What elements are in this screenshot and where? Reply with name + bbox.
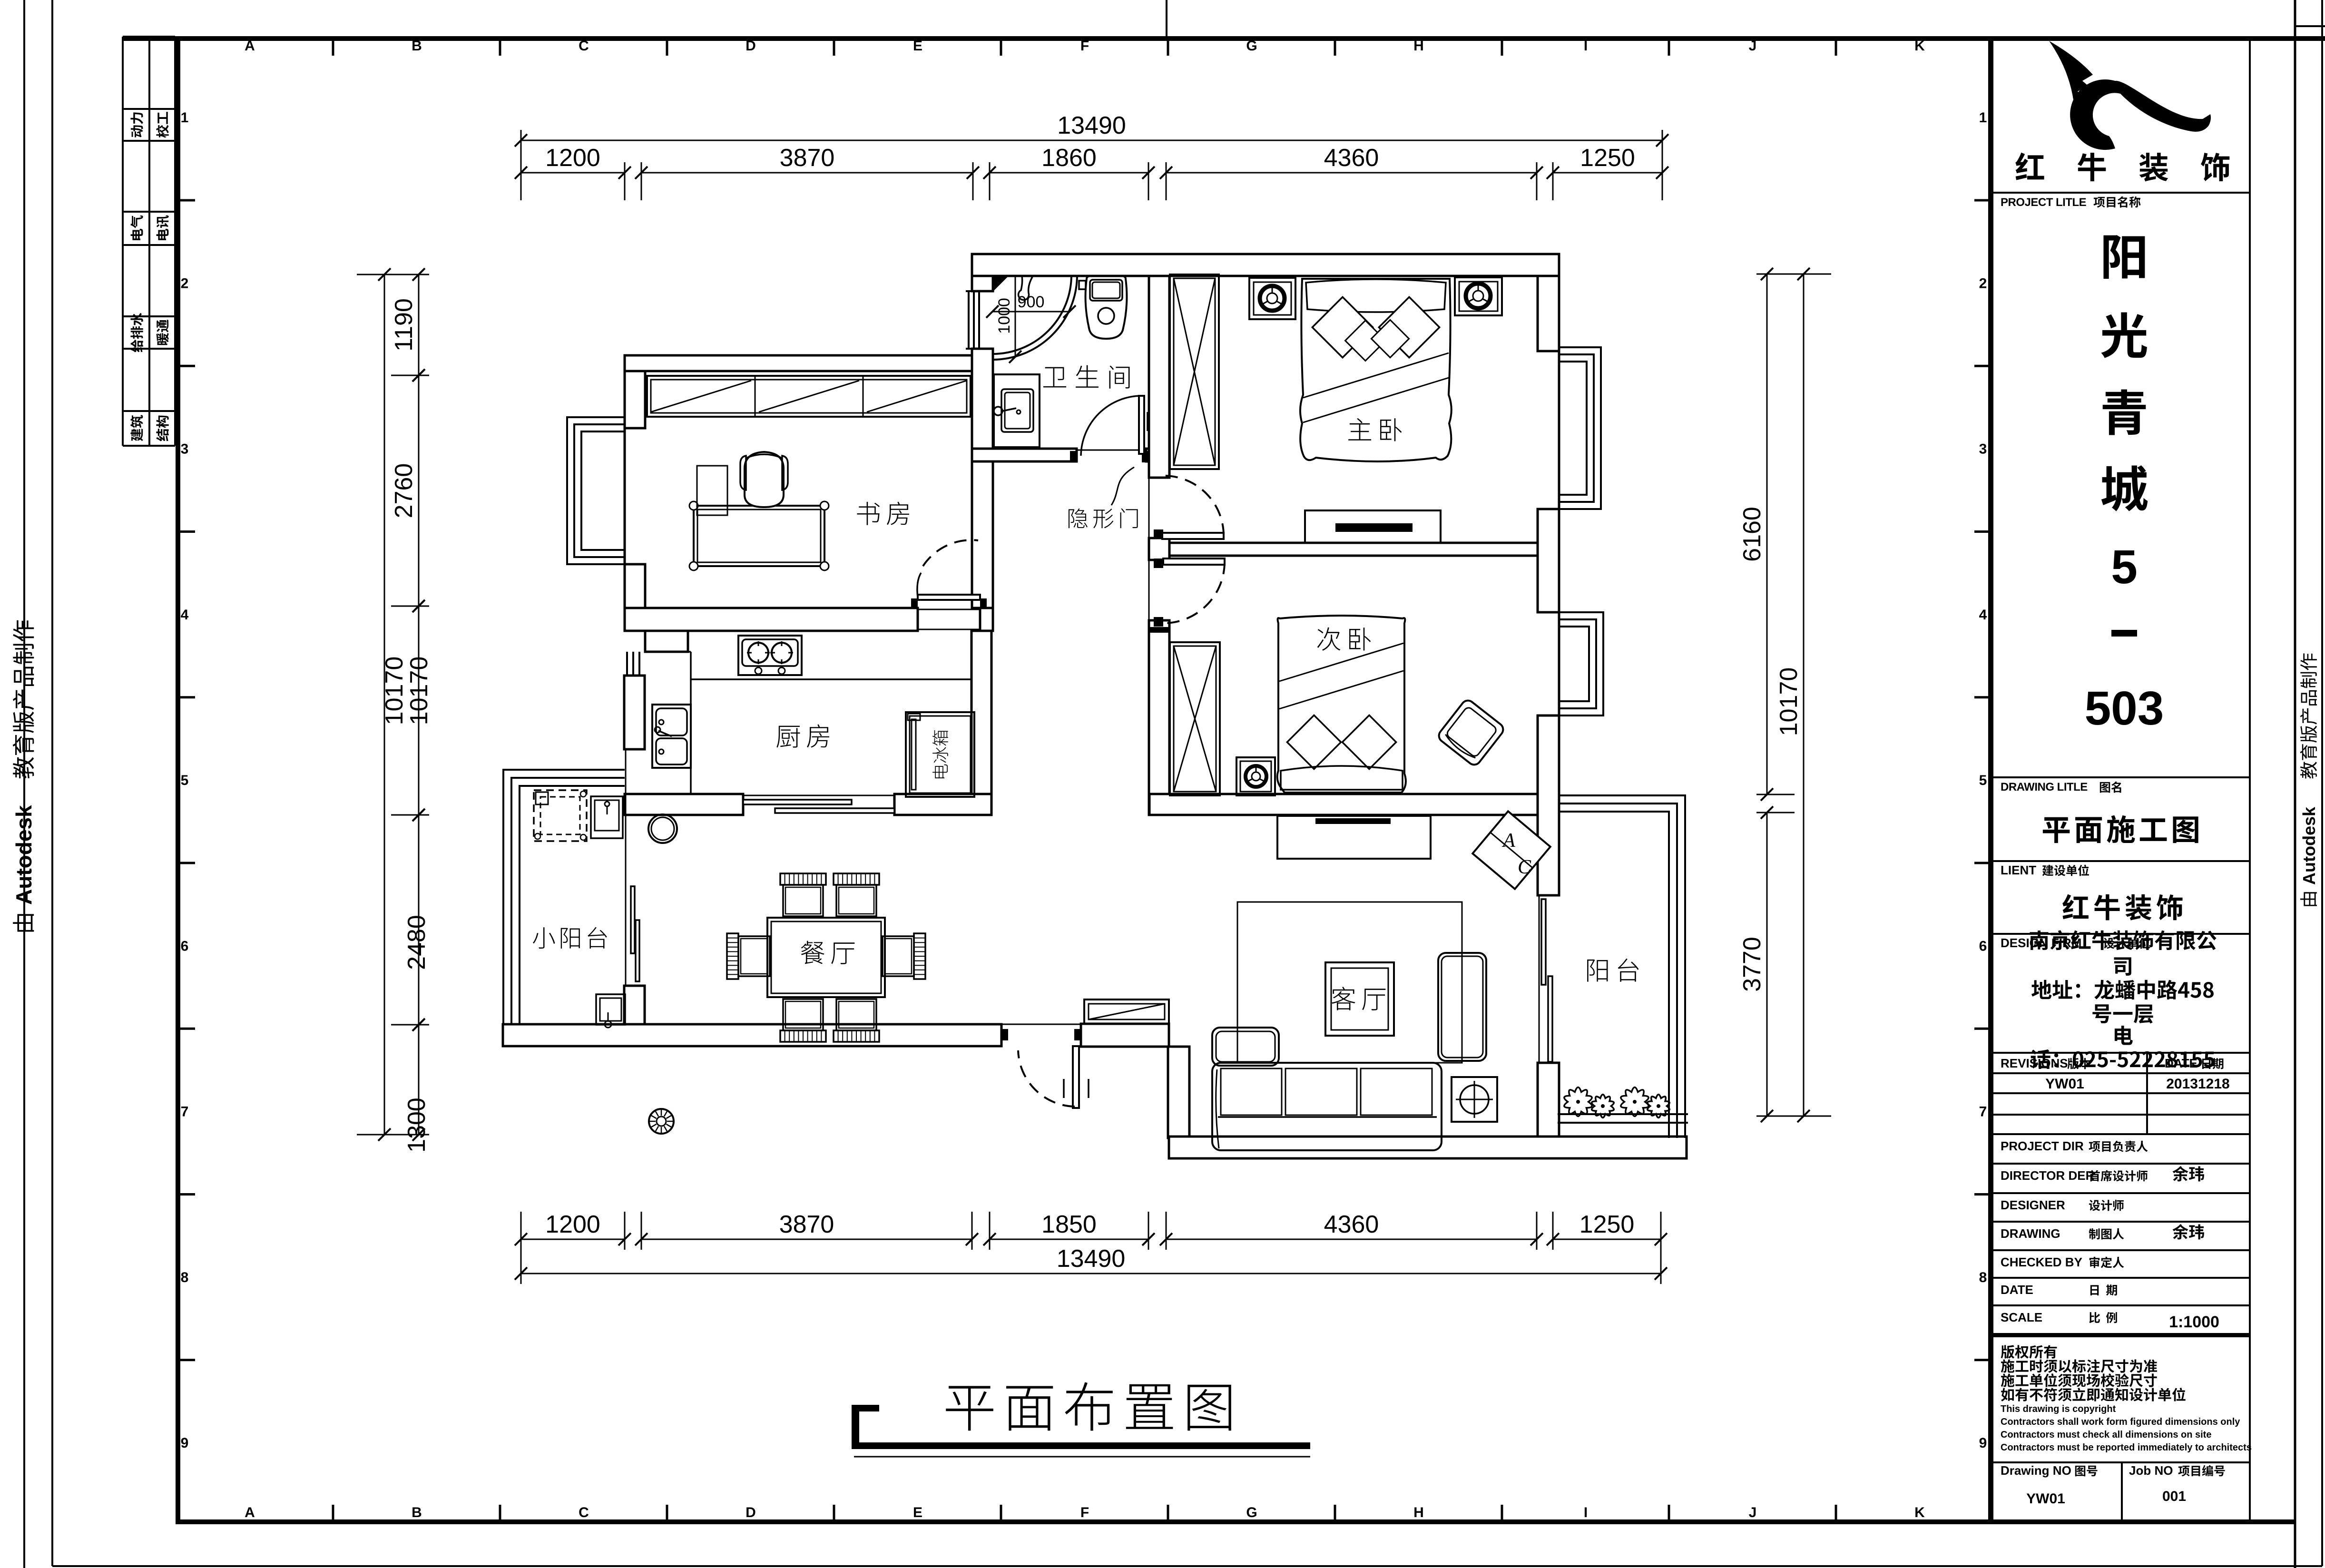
svg-text:6: 6 xyxy=(1979,938,1987,954)
svg-text:3: 3 xyxy=(1979,441,1987,457)
svg-text:13490: 13490 xyxy=(1057,112,1126,139)
svg-text:1250: 1250 xyxy=(1579,1211,1635,1238)
svg-text:5: 5 xyxy=(2111,540,2138,594)
svg-text:9: 9 xyxy=(1979,1435,1987,1451)
svg-text:Contractors shall work form fi: Contractors shall work form figured dime… xyxy=(2001,1417,2240,1427)
svg-text:900: 900 xyxy=(1018,293,1045,311)
svg-text:1250: 1250 xyxy=(1580,144,1635,172)
svg-text:4: 4 xyxy=(1979,607,1987,623)
svg-text:F: F xyxy=(1080,1505,1089,1520)
svg-text:1: 1 xyxy=(181,110,189,126)
svg-text:Autodesk: Autodesk xyxy=(11,805,36,905)
svg-text:Contractors must check all dim: Contractors must check all dimensions on… xyxy=(2001,1430,2211,1440)
svg-text:A: A xyxy=(245,1505,255,1520)
svg-text:A: A xyxy=(245,38,255,54)
svg-text:001: 001 xyxy=(2162,1489,2186,1504)
svg-text:J: J xyxy=(1749,38,1757,54)
svg-text:Contractors must be reported i: Contractors must be reported immediately… xyxy=(2001,1442,2252,1453)
svg-text:YW01: YW01 xyxy=(2045,1076,2084,1092)
svg-text:3770: 3770 xyxy=(1738,937,1766,992)
svg-text:H: H xyxy=(1413,38,1424,54)
svg-text:LIENT: LIENT xyxy=(2001,863,2036,877)
svg-text:DIRECTOR DER: DIRECTOR DER xyxy=(2001,1168,2095,1183)
svg-text:4: 4 xyxy=(181,607,189,623)
svg-text:2760: 2760 xyxy=(390,463,418,519)
svg-text:E: E xyxy=(913,1505,922,1520)
svg-text:3: 3 xyxy=(181,441,189,457)
svg-text:4360: 4360 xyxy=(1324,144,1379,172)
svg-text:4360: 4360 xyxy=(1324,1211,1379,1238)
svg-text:B: B xyxy=(412,1505,422,1520)
svg-text:1860: 1860 xyxy=(1041,144,1097,172)
svg-text:PROJECT DIR: PROJECT DIR xyxy=(2001,1139,2084,1153)
svg-text:3870: 3870 xyxy=(779,1211,834,1238)
svg-text:10170: 10170 xyxy=(381,657,408,725)
svg-text:D: D xyxy=(746,1505,756,1520)
svg-text:SCALE: SCALE xyxy=(2001,1310,2042,1324)
svg-text:1: 1 xyxy=(1979,110,1987,126)
svg-text:13490: 13490 xyxy=(1057,1245,1126,1273)
svg-text:5: 5 xyxy=(1979,773,1987,788)
svg-text:DATE: DATE xyxy=(2165,1056,2197,1070)
svg-text:1190: 1190 xyxy=(390,298,418,352)
svg-text:J: J xyxy=(1749,1505,1757,1520)
svg-text:1850: 1850 xyxy=(1041,1211,1097,1238)
svg-text:C: C xyxy=(579,38,589,54)
svg-text:G: G xyxy=(1246,1505,1257,1520)
svg-text:K: K xyxy=(1914,1505,1925,1520)
svg-text:E: E xyxy=(913,38,922,54)
svg-text:1300: 1300 xyxy=(403,1098,431,1153)
svg-text:PROJECT LITLE: PROJECT LITLE xyxy=(2001,196,2087,209)
svg-text:K: K xyxy=(1914,38,1925,54)
svg-text:B: B xyxy=(412,38,422,54)
svg-text:YW01: YW01 xyxy=(2026,1491,2065,1507)
svg-text:Job NO: Job NO xyxy=(2129,1463,2173,1478)
svg-text:1:1000: 1:1000 xyxy=(2169,1313,2219,1331)
svg-text:G: G xyxy=(1246,38,1257,54)
svg-text:2: 2 xyxy=(1979,275,1987,291)
svg-text:8: 8 xyxy=(181,1270,189,1285)
svg-text:3870: 3870 xyxy=(780,144,835,172)
svg-text:9: 9 xyxy=(181,1435,189,1451)
svg-text:2480: 2480 xyxy=(403,915,431,970)
svg-text:6: 6 xyxy=(181,938,189,954)
svg-text:A: A xyxy=(1501,830,1515,852)
svg-text:1200: 1200 xyxy=(545,1211,600,1238)
svg-text:1200: 1200 xyxy=(545,144,600,172)
svg-text:Autodesk: Autodesk xyxy=(2299,806,2319,885)
svg-text:20131218: 20131218 xyxy=(2166,1076,2229,1092)
svg-text:6160: 6160 xyxy=(1738,507,1766,562)
svg-text:F: F xyxy=(1080,38,1089,54)
svg-text:10170: 10170 xyxy=(1775,667,1803,736)
svg-text:DESIGNER: DESIGNER xyxy=(2001,1198,2065,1212)
svg-text:DRAWING LITLE: DRAWING LITLE xyxy=(2001,781,2088,794)
svg-text:I: I xyxy=(1584,1505,1588,1520)
svg-text:This drawing is copyright: This drawing is copyright xyxy=(2001,1404,2116,1414)
svg-text:10170: 10170 xyxy=(405,657,433,725)
svg-text:DATE: DATE xyxy=(2001,1283,2033,1297)
svg-text:Drawing NO: Drawing NO xyxy=(2001,1463,2071,1478)
svg-text:H: H xyxy=(1413,1505,1424,1520)
svg-text:503: 503 xyxy=(2085,682,2164,735)
svg-text:CHECKED BY: CHECKED BY xyxy=(2001,1255,2082,1269)
svg-text:2: 2 xyxy=(181,275,189,291)
svg-text:7: 7 xyxy=(1979,1104,1987,1120)
svg-text:D: D xyxy=(746,38,756,54)
svg-text:1000: 1000 xyxy=(995,298,1013,334)
svg-text:C: C xyxy=(579,1505,589,1520)
svg-text:REVISIONS: REVISIONS xyxy=(2001,1056,2068,1070)
svg-text:DRAWING: DRAWING xyxy=(2001,1226,2060,1241)
svg-text:8: 8 xyxy=(1979,1270,1987,1285)
svg-text:7: 7 xyxy=(181,1104,189,1120)
svg-text:5: 5 xyxy=(181,773,189,788)
svg-text:I: I xyxy=(1584,38,1588,54)
svg-text:C: C xyxy=(1518,856,1531,878)
